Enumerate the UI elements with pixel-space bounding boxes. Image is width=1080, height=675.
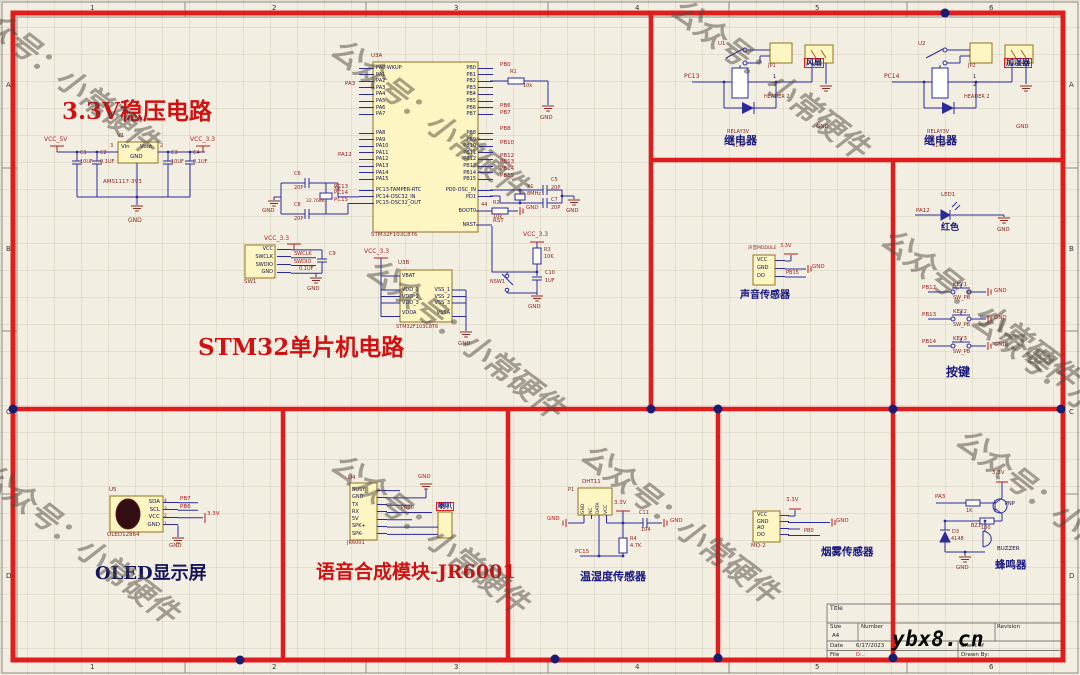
part-number: AMS1117-3V3 xyxy=(103,180,142,186)
gnd-label: GND xyxy=(566,209,579,215)
chip-pin: PB12 xyxy=(410,156,476,163)
titleblock-file-value: D:.. xyxy=(856,653,865,658)
pin-label: GND xyxy=(130,155,143,161)
grid-ref: 5 xyxy=(815,663,819,671)
chip-pin: PB2 xyxy=(410,78,476,85)
chip-pin: PB1 xyxy=(410,72,476,79)
gnd-label: GND xyxy=(1016,125,1029,131)
caption: 温湿度传感器 xyxy=(580,571,646,582)
chip-pin-nrst: NRST xyxy=(410,222,476,229)
net-label: VCC_3.3 xyxy=(190,137,215,143)
net-label: PB10 xyxy=(500,141,514,147)
designator: R1 xyxy=(510,70,517,75)
designator: X2 xyxy=(334,187,341,192)
net-label: PB13 xyxy=(922,313,936,319)
chip-pin: PD1 xyxy=(410,194,476,201)
grid-ref: 6 xyxy=(989,4,993,12)
power-label: 3.3V xyxy=(992,471,1005,477)
capacitor: C310UF xyxy=(171,150,193,165)
chip-pin: PB7 xyxy=(410,111,476,118)
net-label: PC14 xyxy=(884,74,899,80)
chip-pin: VCC xyxy=(604,491,609,514)
chip-pins-right-2: PB8PB9PB10PB11PB12PB13PB14PB15 xyxy=(410,130,476,183)
chip-pin: DO xyxy=(757,273,773,281)
oled-pin-numbers: 4321 xyxy=(164,499,172,529)
grid-ref: 6 xyxy=(989,663,993,671)
net-label: PB0 xyxy=(500,63,511,69)
gnd-label: GND xyxy=(169,544,182,550)
debug-pins: VCCSWCLKSWDIOGND xyxy=(249,246,273,277)
grid-ref: D xyxy=(1069,572,1074,580)
chip-pin: VSSA xyxy=(404,310,450,317)
chip-pin: PB11 xyxy=(410,150,476,157)
key-circuit: PB12 KEY1 SW_PB GND xyxy=(913,282,1033,308)
designator: C3 xyxy=(171,150,193,156)
section-title: STM32单片机电路 xyxy=(198,336,404,359)
power-label: 3.3V xyxy=(207,512,220,518)
chip-pin: GND xyxy=(249,269,273,277)
key-circuit: PB13 KEY2 SW_PB GND xyxy=(913,309,1033,335)
schematic-sheet: 123456 123456 ABCD ABCD 3.3V稳压电路 VCC_5V … xyxy=(0,0,1080,675)
chip-pin: PB5 xyxy=(410,98,476,105)
chip-pin: VSS_3 xyxy=(404,300,450,307)
power-label: 3.3V xyxy=(786,498,799,504)
net-label: PC15 xyxy=(334,198,348,204)
part-number: STM32F103C8T6 xyxy=(371,233,417,239)
designator: U3A xyxy=(371,54,382,60)
net-label: PB15 xyxy=(786,271,799,276)
value: 4148 xyxy=(951,537,964,542)
designator: NSW1 xyxy=(490,280,505,285)
pin-number: 2 xyxy=(164,514,172,522)
net-label: PB7 xyxy=(500,111,511,117)
value: 0.1UF xyxy=(193,159,215,165)
gnd-label: GND xyxy=(528,305,541,311)
pin-number: 2 xyxy=(973,83,976,88)
grid-ref: 1 xyxy=(90,663,94,671)
gnd-flag-left xyxy=(563,519,566,527)
chip-pin: PB3 xyxy=(410,85,476,92)
site-watermark: ybx8.cn xyxy=(892,627,984,651)
pin-number: 3 xyxy=(164,507,172,515)
net-label: PA3 xyxy=(935,495,945,501)
led-color-label: 红色 xyxy=(941,224,959,233)
power-label: VCC_3.3 xyxy=(264,236,289,242)
part-number: SW_PB xyxy=(953,323,970,328)
pin-number: 1 xyxy=(973,75,976,80)
chip-pin: PB15 xyxy=(410,176,476,183)
u3b-pins-right: VSS_1VSS_2VSS_3VSSA xyxy=(404,287,450,317)
load-label: 风扇 xyxy=(804,58,824,68)
designator: BZ1 xyxy=(971,524,981,529)
net-label: SWCLK xyxy=(294,252,312,257)
value: 8MHz xyxy=(527,192,541,197)
part-number: SW_PB xyxy=(953,296,970,301)
net-label: PA12 xyxy=(338,153,352,159)
gnd-label: GND xyxy=(262,209,275,215)
designator: U5 xyxy=(109,488,117,494)
value: 32.768K xyxy=(306,200,325,205)
grid-ref: C xyxy=(1069,408,1074,416)
capacitor: C40.1UF xyxy=(193,150,215,165)
pin-number: 2 xyxy=(773,83,776,88)
designator: U4 xyxy=(348,476,356,482)
capacitor: C20.1UF xyxy=(100,150,122,165)
oled-pins: SDASCLVCCGND xyxy=(113,499,160,529)
value: 104 xyxy=(641,528,651,533)
relay-circuit: PC13 U1 JP1 1 2 HEADER 2 风扇 RELAY3V 4148… xyxy=(680,30,840,170)
chip-pin: RX xyxy=(352,509,375,516)
sensor-pins: VCCGNDDO xyxy=(757,257,773,281)
grid-ref: 4 xyxy=(635,4,639,12)
gnd-flag-label: GND xyxy=(418,475,431,481)
chip-pin: VBAT xyxy=(402,273,448,280)
value: 10k xyxy=(523,84,532,89)
net-label: PB14 xyxy=(500,167,514,173)
caption: 声音传感器 xyxy=(740,291,790,301)
chip-pin: SCL xyxy=(113,507,160,515)
designator: KEY1 xyxy=(953,283,967,289)
part-number: DHT11 xyxy=(582,480,601,486)
designator: R3 xyxy=(544,248,551,253)
pin-number: 4 xyxy=(164,499,172,507)
value: 20P xyxy=(294,217,303,222)
net-label: PB15 xyxy=(500,174,514,180)
designator: D3 xyxy=(952,530,959,535)
voice-pins: BUSYGNDTXRX5VSPK+SPK- xyxy=(352,487,375,538)
net-label: PB0 xyxy=(804,529,814,534)
designator: KEY3 xyxy=(953,337,967,343)
part-number: OLED12864 xyxy=(107,533,140,539)
gnd-label: GND xyxy=(458,342,471,348)
chip-pin: VCC xyxy=(757,257,773,265)
designator: C2 xyxy=(100,150,122,156)
designator: KEY2 xyxy=(953,310,967,316)
caption: OLED显示屏 xyxy=(95,565,207,583)
chip-pin: PB4 xyxy=(410,91,476,98)
chip-pin: PD0-OSC_IN xyxy=(410,187,476,194)
net-label: SWDIO xyxy=(294,260,311,265)
value: 20P xyxy=(551,186,560,191)
load-label: 加湿器 xyxy=(1004,58,1032,68)
chip-pin: PB13 xyxy=(410,163,476,170)
gnd-flag-label: GND xyxy=(994,289,1007,295)
designator: C11 xyxy=(639,511,649,516)
chip-pin: PC15-OSC32_OUT xyxy=(376,200,444,207)
speaker-label: 喇叭 xyxy=(436,502,454,511)
chip-pin: SPK- xyxy=(352,531,375,538)
net-label: PC15 xyxy=(575,550,589,556)
value: 1K xyxy=(966,509,972,514)
value: 4.7K xyxy=(630,544,641,549)
gnd-label: GND xyxy=(997,228,1010,234)
chip-pin: GND xyxy=(757,265,773,273)
value: 100 xyxy=(981,526,991,531)
designator: X1 xyxy=(527,185,534,190)
chip-pin: PB8 xyxy=(410,130,476,137)
chip-pin: GND xyxy=(581,491,586,514)
caption: 烟雾传感器 xyxy=(821,547,874,558)
designator: C5 xyxy=(551,178,558,183)
pin-number: 1 xyxy=(164,522,172,530)
chip-pin: VCC xyxy=(249,246,273,254)
net-label: PC13 xyxy=(684,74,699,80)
transistor-label: PNP xyxy=(1005,502,1015,507)
chip-pin: PB6 xyxy=(410,105,476,112)
gnd-label: GND xyxy=(128,218,142,224)
designator: C8 xyxy=(294,203,301,208)
chip-pin: NC xyxy=(589,491,594,514)
grid-ref: B xyxy=(1069,245,1074,253)
part-number: JR6001 xyxy=(347,541,365,546)
gnd-flag-label: GND xyxy=(836,519,849,525)
chip-pin: 5V xyxy=(352,516,375,523)
chip-pin: SWCLK xyxy=(249,254,273,262)
chip-pin: DATA xyxy=(596,491,601,514)
net-label: PB14 xyxy=(922,340,936,346)
designator: C4 xyxy=(193,150,215,156)
net-label: PB6 xyxy=(500,104,511,110)
pin-label: Vin xyxy=(121,145,130,151)
gnd-flag-label: GND xyxy=(526,206,539,212)
power-label: 3.3V xyxy=(780,244,791,249)
grid-ref: A xyxy=(6,81,11,89)
pin-number: 3 xyxy=(110,144,113,149)
designator: U3B xyxy=(398,261,409,267)
part-number: STM32F103C8T6 xyxy=(396,325,438,330)
caption: 按键 xyxy=(946,366,970,378)
designator: C6 xyxy=(294,172,301,177)
value: 0.1UF xyxy=(299,267,314,272)
chip-pins-right-1: PB0PB1PB2PB3PB4PB5PB6PB7 xyxy=(410,65,476,118)
chip-pin-boot0: BOOT0 xyxy=(410,208,476,215)
capacitor: C110UF xyxy=(80,150,102,165)
net-label: PA12 xyxy=(916,209,930,215)
value: 0.1UF xyxy=(100,159,122,165)
designator: 声音MODULE xyxy=(748,247,777,252)
chip-pin: SWDIO xyxy=(249,262,273,270)
net-label: PB6 xyxy=(180,505,191,511)
titleblock-date-value: 6/17/2023 xyxy=(856,644,884,650)
section-title: 3.3V稳压电路 xyxy=(62,100,212,123)
chip-pin: VCC xyxy=(113,514,160,522)
designator: U2 xyxy=(918,42,926,48)
pin-label: Vout xyxy=(140,145,152,151)
gnd-label: GND xyxy=(816,125,829,131)
value: 10UF xyxy=(171,159,193,165)
chip-pin: BUSY xyxy=(352,487,375,494)
power-label: VCC_3.3 xyxy=(523,232,548,238)
chip-pin: PB14 xyxy=(410,170,476,177)
value: 20P xyxy=(551,206,560,211)
chip-pin: SPK+ xyxy=(352,523,375,530)
designator: JP2 xyxy=(968,64,976,69)
titleblock-title-label: Title xyxy=(830,606,843,612)
chip-pin: DO xyxy=(757,532,778,539)
designator: LED1 xyxy=(941,193,955,199)
gnd-flag-label: GND xyxy=(812,265,825,271)
designator: R4 xyxy=(630,537,637,542)
power-label: VCC_3.3 xyxy=(364,249,389,255)
part-number: BUZZER xyxy=(997,547,1020,553)
part-number: HEADER 2 xyxy=(964,95,990,100)
titleblock-file-label: File xyxy=(830,653,839,659)
net-label: RST xyxy=(493,219,504,225)
key-circuit: PB14 KEY3 SW_PB GND xyxy=(913,336,1033,362)
net-label: PB7 xyxy=(180,497,191,503)
gnd-flag-label: GND xyxy=(547,517,560,523)
net-label: VCC_5V xyxy=(44,137,67,143)
value: 1UF xyxy=(545,279,555,284)
grid-ref: 5 xyxy=(815,4,819,12)
chip-pin: GND xyxy=(113,522,160,530)
value: 20P xyxy=(294,186,303,191)
pin-number: 44 xyxy=(481,203,487,208)
grid-ref: 3 xyxy=(454,663,458,671)
grid-ref: A xyxy=(1069,81,1074,89)
net-label: PB8 xyxy=(500,127,511,133)
caption: 继电器 xyxy=(724,135,757,146)
designator: C7 xyxy=(551,198,558,203)
chip-pin: PB0 xyxy=(410,65,476,72)
grid-ref: 2 xyxy=(272,4,276,12)
designator: V1 xyxy=(117,134,124,140)
mq2-pins: VCCGNDAODO xyxy=(757,512,778,538)
value: 10UF xyxy=(80,159,102,165)
chip-pin: PB9 xyxy=(410,137,476,144)
chip-pin: PB10 xyxy=(410,143,476,150)
gnd-flag-label: GND xyxy=(994,316,1007,322)
designator: C1 xyxy=(80,150,102,156)
chip-pin: TX xyxy=(352,502,375,509)
gnd-label: GND xyxy=(956,566,969,572)
power-label: 3.3V xyxy=(614,501,627,507)
designator: JP1 xyxy=(768,64,776,69)
titleblock-number-label: Number xyxy=(861,625,883,631)
chip-pin: GND xyxy=(352,494,375,501)
pin-number: 1 xyxy=(773,75,776,80)
designator: C9 xyxy=(329,252,336,257)
pin-number: 2 xyxy=(160,144,163,149)
caption: 继电器 xyxy=(924,135,957,146)
chip-pin: SDA xyxy=(113,499,160,507)
gnd-flag-label: GND xyxy=(670,519,683,525)
net-label: PB13 xyxy=(500,160,514,166)
part-number: HEADER 2 xyxy=(764,95,790,100)
titleblock-size-value: A4 xyxy=(832,634,839,640)
gnd-label: GND xyxy=(540,116,553,122)
net-label: PA3 xyxy=(345,82,355,88)
designator: SW1 xyxy=(244,280,256,286)
relay-circuit: PC14 U2 JP2 1 2 HEADER 2 加湿器 RELAY3V 414… xyxy=(880,30,1040,170)
gnd-label: GND xyxy=(307,287,320,293)
titleblock-revision-label: Revision xyxy=(997,625,1020,631)
gnd-flag-label: GND xyxy=(994,343,1007,349)
grid-ref: 2 xyxy=(272,663,276,671)
titleblock-drawn-label: Drawn By: xyxy=(961,653,989,659)
designator: P1 xyxy=(568,488,574,493)
designator: MQ-2 xyxy=(751,544,766,550)
designator: C10 xyxy=(545,271,555,276)
grid-ref: B xyxy=(6,245,11,253)
grid-ref: 1 xyxy=(90,4,94,12)
titleblock-date-label: Date xyxy=(830,644,843,650)
caption: 蜂鸣器 xyxy=(995,560,1027,571)
section-title: 语音合成模块-JR6001 xyxy=(316,563,516,582)
grid-ref: D xyxy=(6,572,11,580)
part-number: SW_PB xyxy=(953,350,970,355)
net-label: PB12 xyxy=(922,286,936,292)
designator: R2 xyxy=(493,201,500,206)
grid-ref: 3 xyxy=(454,4,458,12)
chip-pins-right-3: PD0-OSC_INPD1 xyxy=(410,187,476,200)
grid-ref: 4 xyxy=(635,663,639,671)
value: 10K xyxy=(544,255,554,260)
designator: U1 xyxy=(718,42,726,48)
grid-ref: C xyxy=(6,408,11,416)
titleblock-size-label: Size xyxy=(830,625,841,631)
net-label: PB10 xyxy=(401,506,414,511)
